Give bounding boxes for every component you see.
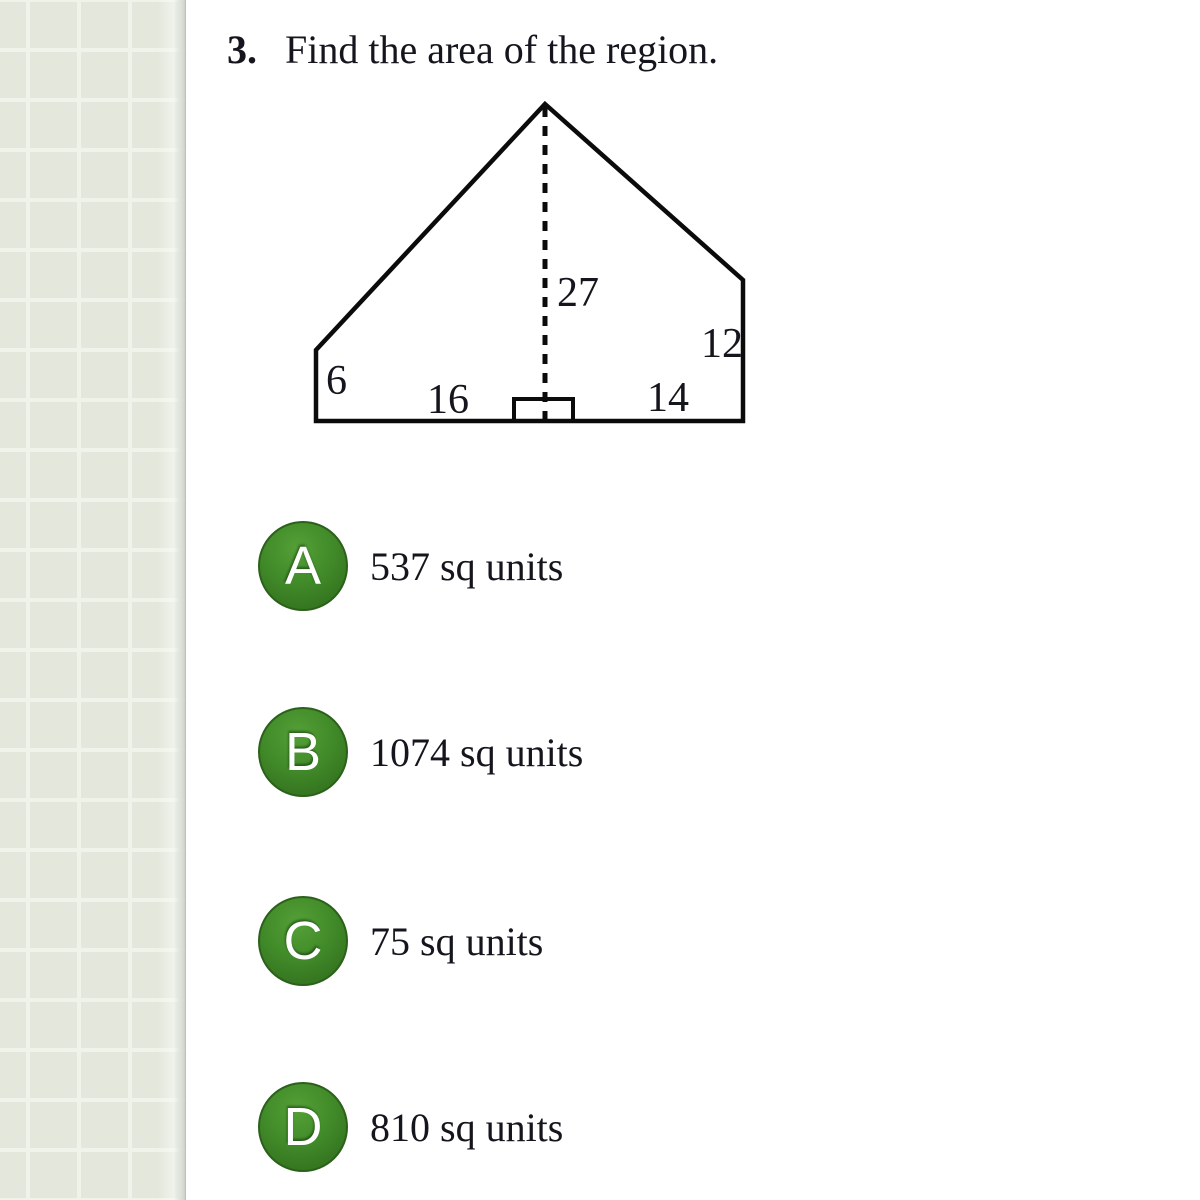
option-d-button[interactable]: D (258, 1082, 348, 1172)
option-b-text: 1074 sq units (370, 729, 583, 776)
pentagon-outline (316, 104, 743, 421)
option-c-letter: C (284, 914, 323, 968)
option-row-c: C 75 sq units (258, 896, 543, 986)
label-right-side: 12 (701, 321, 743, 367)
option-a-letter: A (285, 539, 321, 593)
geometry-figure: 27 12 6 16 14 (280, 85, 770, 435)
option-d-text: 810 sq units (370, 1104, 563, 1151)
label-bottom-right: 14 (647, 375, 689, 421)
option-c-button[interactable]: C (258, 896, 348, 986)
option-c-text: 75 sq units (370, 918, 543, 965)
label-left-side: 6 (326, 358, 347, 404)
label-height: 27 (557, 270, 599, 316)
option-b-letter: B (285, 725, 321, 779)
option-d-letter: D (284, 1100, 323, 1154)
question-number: 3. (227, 27, 257, 72)
option-a-button[interactable]: A (258, 521, 348, 611)
question-title: 3.Find the area of the region. (227, 26, 718, 73)
label-bottom-left: 16 (427, 377, 469, 423)
option-a-text: 537 sq units (370, 543, 563, 590)
option-b-button[interactable]: B (258, 707, 348, 797)
option-row-b: B 1074 sq units (258, 707, 583, 797)
option-row-a: A 537 sq units (258, 521, 563, 611)
grid-sidebar (0, 0, 186, 1200)
quiz-screen: 3.Find the area of the region. 27 12 6 1… (0, 0, 1200, 1200)
option-row-d: D 810 sq units (258, 1082, 563, 1172)
question-text: Find the area of the region. (285, 27, 718, 72)
